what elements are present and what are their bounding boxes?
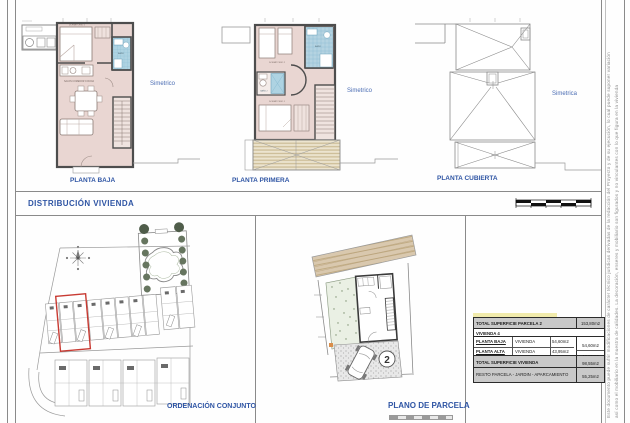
parcela-label: TOTAL SUPERFICIE PARCELA 2 <box>476 321 542 326</box>
room-label-salon: SALON COMEDOR COCINA <box>64 80 94 83</box>
floorplan-planta-baja: BAÑO DORMITORIO 2 SALON COMEDOR COCINA <box>15 15 215 193</box>
kitchen <box>60 65 93 76</box>
frame-line-left-outer <box>7 0 8 423</box>
total-label: TOTAL SUPERFICIE VIVIENDA <box>476 360 538 365</box>
bathroom: BAÑO <box>112 37 131 70</box>
resto-value: 55,25m2 <box>576 368 604 382</box>
plot-number-badge: 2 <box>379 351 395 367</box>
table-row-parcela: TOTAL SUPERFICIE PARCELA 2 153,80m2 <box>474 318 604 329</box>
label-plano-de-parcela: PLANO DE PARCELA <box>388 401 470 410</box>
parcel-plan: 2 <box>300 225 470 420</box>
symmetry-note-baja: Simetrico <box>150 81 175 87</box>
table-row-resto: RESTO PARCELA - JARDIN - APARCAMIENTO 55… <box>474 368 604 382</box>
ground-line <box>133 159 200 163</box>
floor-row-name: PLANTA ALTA <box>476 349 505 354</box>
floor-row-use: VIVIENDA <box>515 339 535 344</box>
house-row-bottom <box>55 358 189 406</box>
site-plan <box>25 220 260 423</box>
floor-row-subtotal: 54,60m2 <box>576 337 604 350</box>
floor-row-area: 54,60m2 <box>552 339 569 344</box>
table-row-floors: PLANTA BAJA VIVIENDA 54,60m2 PLANTA ALTA… <box>474 337 604 356</box>
house-footprint <box>356 274 398 342</box>
area-table: TOTAL SUPERFICIE PARCELA 2 153,80m2 VIVI… <box>473 317 605 383</box>
symmetry-note-cubierta: Simetrica <box>552 91 577 97</box>
mini-scale-bar <box>389 415 453 420</box>
terrace <box>245 140 340 170</box>
room-label-dormitorio2: DORMITORIO 2 <box>69 25 86 27</box>
sofa <box>60 119 93 135</box>
symmetry-note-primera: Simetrico <box>347 88 372 94</box>
porch-laundry <box>22 25 57 50</box>
floor-row-name: PLANTA BAJA <box>476 339 506 344</box>
room-label-bano2: BAÑO 2 <box>260 90 268 93</box>
floorplan-planta-cubierta <box>415 15 615 193</box>
entry-step <box>73 167 99 173</box>
resto-label: RESTO PARCELA - JARDIN - APARCAMIENTO <box>476 372 568 377</box>
house-row-top <box>45 285 196 344</box>
ground-line <box>340 159 398 163</box>
table-row-total: TOTAL SUPERFICIE VIVIENDA 98,55m2 <box>474 356 604 368</box>
frame-line-right-outer <box>624 0 625 423</box>
parcela-value: 153,80m2 <box>576 318 604 328</box>
floorplan-planta-primera: DORMITORIO 2 BAÑO BAÑO 2 <box>215 15 405 193</box>
label-planta-primera: PLANTA PRIMERA <box>232 177 289 184</box>
label-planta-cubierta: PLANTA CUBIERTA <box>437 175 498 182</box>
room-label-dormitorio2: DORMITORIO 2 <box>269 62 286 64</box>
vivienda-header: VIVIENDA 4 <box>476 331 500 336</box>
room-label-bano: BAÑO <box>118 52 124 55</box>
floor-row-area: 43,95m2 <box>552 349 569 354</box>
section-title: DISTRIBUCIÓN VIVIENDA <box>28 199 134 208</box>
table-row-vivienda-header: VIVIENDA 4 <box>474 329 604 337</box>
stairs <box>315 85 335 140</box>
plan-sheet: BAÑO DORMITORIO 2 SALON COMEDOR COCINA <box>0 0 630 423</box>
pool-garden <box>138 222 190 295</box>
floor-row-use: VIVIENDA <box>515 349 535 354</box>
total-value: 98,55m2 <box>576 356 604 367</box>
neighbor-porch <box>222 27 250 43</box>
room-label-bano: BAÑO <box>315 45 321 48</box>
bathroom-2: BAÑO 2 <box>257 72 285 95</box>
plot-number: 2 <box>384 355 390 366</box>
disclaimer-line-1: Este documento puede sufrir modificacion… <box>606 8 611 418</box>
bathroom: BAÑO <box>305 27 333 68</box>
label-ordenacion-conjunto: ORDENACIÓN CONJUNTO <box>167 403 256 410</box>
garden-marker <box>329 343 333 347</box>
disclaimer-line-2: así como el mobiliario en la muestra de … <box>614 8 619 418</box>
room-label-dormitorio1: DORMITORIO 1 <box>269 101 286 103</box>
compass-icon <box>66 246 90 270</box>
divider-mid-section <box>15 215 601 216</box>
label-planta-baja: PLANTA BAJA <box>70 177 115 184</box>
graphic-scale-bar <box>515 196 595 210</box>
bedroom-1: DORMITORIO 1 <box>259 101 309 131</box>
